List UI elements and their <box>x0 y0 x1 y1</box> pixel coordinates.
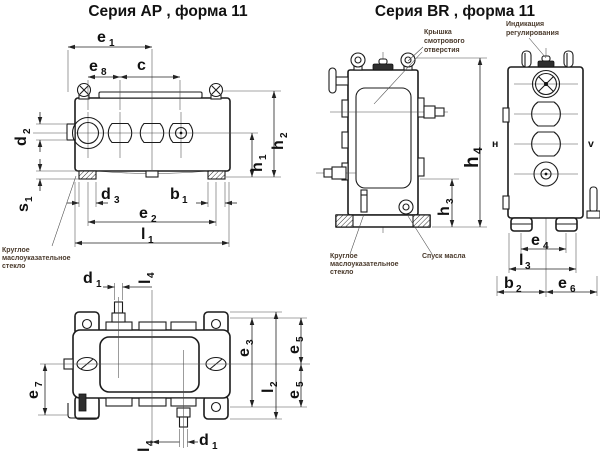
svg-text:7: 7 <box>34 381 45 387</box>
dim-label-h4: h 4 <box>462 147 485 168</box>
br-end-stud-right <box>564 51 573 67</box>
svg-text:маслоуказательное: маслоуказательное <box>2 255 71 262</box>
svg-text:4: 4 <box>145 440 156 446</box>
dim-label-e4: e <box>531 232 540 249</box>
br-oil-glass-bolt <box>361 190 367 212</box>
svg-text:1: 1 <box>24 196 35 202</box>
dim-label-s1: s 1 <box>15 196 35 212</box>
svg-text:h: h <box>270 140 287 150</box>
br-eyebolt-left <box>351 53 365 70</box>
svg-text:регулирования: регулирования <box>506 30 559 37</box>
br-oil-drain-plug <box>399 200 413 214</box>
br-cover-annotation: Крышка смотрового отверстия <box>424 29 465 54</box>
technical-drawing-page: Серия АР , форма 11 Серия BR , форма 11 <box>0 0 600 456</box>
dim-label-d1-bottom: d <box>199 432 209 449</box>
dim-label-e5-top: e 5 <box>286 336 306 354</box>
ap-top-lid <box>100 337 199 392</box>
dim-label-e1: e <box>97 29 106 46</box>
svg-text:e: e <box>286 345 303 354</box>
dim-label-l2: l 2 <box>260 381 280 393</box>
svg-text:стекло: стекло <box>330 269 353 276</box>
dim-label-h2: h 2 <box>270 132 290 150</box>
br-drain-annotation: Спуск масла <box>422 253 466 260</box>
dim-sub-d3: 3 <box>114 195 120 206</box>
dim-sub-b2: 2 <box>516 284 522 295</box>
svg-text:отверстия: отверстия <box>424 47 460 54</box>
dim-label-b1: b <box>170 186 180 203</box>
svg-text:h: h <box>462 156 483 168</box>
ap-top-view: d 1 l 4 e 7 e 3 l 2 e 5 e 5 l 4 d <box>25 270 310 452</box>
ap-top-tab-bl <box>75 396 99 419</box>
dim-label-d2: d 2 <box>13 128 33 146</box>
br-input-shaft <box>324 167 346 179</box>
dim-sub-e6: 6 <box>570 284 576 295</box>
br-oil-glass-annotation: Круглое маслоуказательное стекло <box>330 253 399 276</box>
dim-label-d1-top: d <box>83 270 93 287</box>
dim-sub-b1: 1 <box>182 195 188 206</box>
dim-label-l3: l <box>519 252 523 269</box>
svg-text:маслоуказательное: маслоуказательное <box>330 261 399 268</box>
dim-sub-e1: 1 <box>109 38 115 49</box>
ap-bottom-tab <box>146 171 158 177</box>
br-side-housing <box>348 70 418 215</box>
dim-label-e7: e 7 <box>25 381 45 399</box>
br-output-shaft <box>424 106 444 118</box>
ap-top-tab-br <box>204 396 228 419</box>
svg-text:4: 4 <box>146 272 157 278</box>
ap-foot-right <box>208 171 225 179</box>
dim-sub-l1: 1 <box>148 235 154 246</box>
svg-text:4: 4 <box>471 147 485 154</box>
svg-text:e: e <box>25 390 42 399</box>
title-series-br: Серия BR , форма 11 <box>375 3 536 20</box>
dim-label-e2: e <box>139 205 148 222</box>
dim-label-e6: e <box>558 275 567 292</box>
ap-lid-plate <box>99 92 202 98</box>
dim-sub-d1-top: 1 <box>96 279 102 290</box>
svg-text:e: e <box>236 348 253 357</box>
title-series-ap: Серия АР , форма 11 <box>88 3 248 20</box>
svg-text:5: 5 <box>295 381 306 387</box>
svg-text:l: l <box>136 448 153 452</box>
br-adjustment-crank <box>329 68 348 93</box>
br-end-view: н v Индикация регулирования <box>492 21 600 297</box>
dim-label-l4-bottom: l 4 <box>136 440 156 452</box>
dim-sub-e4: 4 <box>543 241 549 252</box>
dim-label-h3: h 3 <box>436 198 456 216</box>
svg-text:l: l <box>260 389 277 393</box>
label-vertical-v: v <box>588 138 594 150</box>
svg-text:s: s <box>15 203 32 212</box>
dim-label-d3: d <box>101 186 111 203</box>
svg-text:2: 2 <box>269 381 280 387</box>
br-indication-annotation: Индикация регулирования <box>506 21 559 37</box>
br-base-plate <box>336 215 430 227</box>
label-horizontal-n: н <box>492 138 498 150</box>
dim-label-e5-bottom: e 5 <box>286 381 306 399</box>
dim-sub-l3: 3 <box>525 261 531 272</box>
br-end-housing <box>508 67 583 218</box>
br-side-bolt <box>587 187 600 218</box>
br-top-cap <box>373 59 393 70</box>
ap-eyebolt-left <box>78 84 91 100</box>
svg-text:e: e <box>286 390 303 399</box>
svg-text:d: d <box>13 136 30 146</box>
ap-foot-left <box>79 171 96 179</box>
ap-front-view: e 1 e 8 c d 2 s 1 d 3 b 1 e 2 l 1 h 1 h … <box>2 29 290 270</box>
dim-label-l1: l <box>141 226 145 243</box>
dim-label-c: c <box>137 57 146 74</box>
svg-text:3: 3 <box>245 339 256 345</box>
dim-label-e8: e <box>89 58 98 75</box>
svg-text:Крышка: Крышка <box>424 29 452 36</box>
dim-sub-e2: 2 <box>151 214 157 225</box>
svg-text:h: h <box>249 162 266 172</box>
svg-text:стекло: стекло <box>2 263 25 270</box>
dim-label-l4-top: l 4 <box>137 272 157 284</box>
dim-sub-d1-bottom: 1 <box>212 441 218 452</box>
dim-label-b2: b <box>504 275 514 292</box>
gear-reducer-drawing: Серия АР , форма 11 Серия BR , форма 11 <box>0 0 600 456</box>
svg-text:Круглое: Круглое <box>2 247 30 254</box>
svg-text:5: 5 <box>295 336 306 342</box>
svg-text:3: 3 <box>445 198 456 204</box>
br-side-view: h 4 h 3 Крышка смотрового отверстия Круг… <box>316 29 487 276</box>
svg-text:l: l <box>137 280 154 284</box>
ap-oil-glass-annotation: Круглое маслоуказательное стекло <box>2 247 71 270</box>
svg-text:1: 1 <box>258 154 269 160</box>
ap-eyebolt-right <box>210 84 223 100</box>
svg-text:смотрового: смотрового <box>424 38 465 45</box>
dim-sub-e8: 8 <box>101 67 107 78</box>
svg-text:2: 2 <box>279 132 290 138</box>
svg-text:2: 2 <box>22 128 33 134</box>
br-end-stud-left <box>522 51 531 67</box>
svg-text:Круглое: Круглое <box>330 253 358 260</box>
svg-text:h: h <box>436 206 453 216</box>
svg-text:Индикация: Индикация <box>506 21 544 28</box>
dim-label-e3: e 3 <box>236 339 256 357</box>
